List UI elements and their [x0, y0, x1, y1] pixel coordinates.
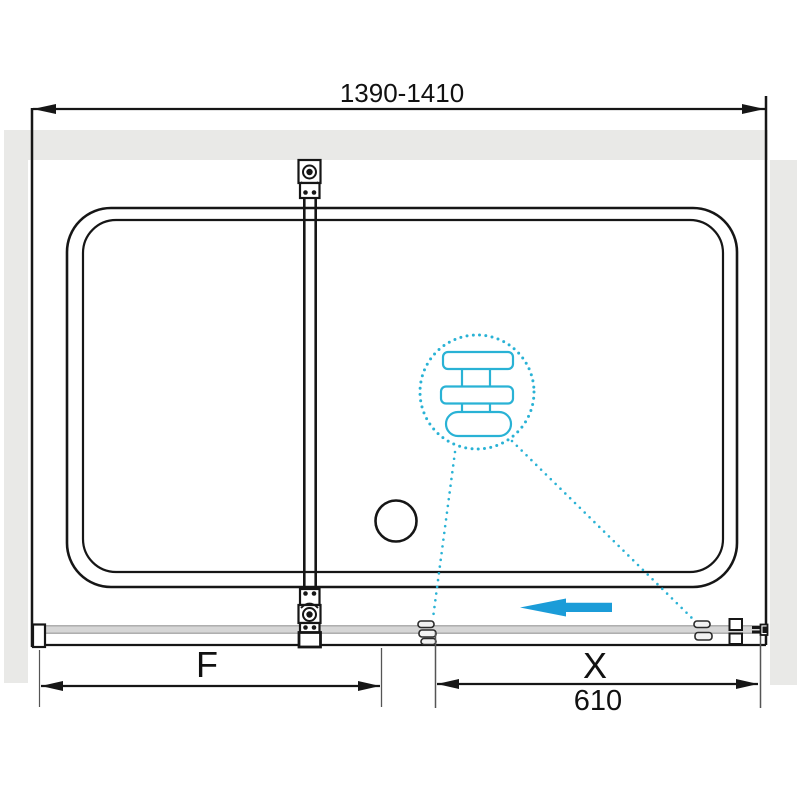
- slide-direction-arrow-icon: [520, 599, 612, 617]
- wall-top: [28, 130, 768, 160]
- drain-icon: [376, 501, 417, 542]
- dim-arrow-left-icon: [41, 681, 63, 691]
- towel-bar-top: [443, 352, 513, 369]
- door-roller-left-icon: [418, 621, 436, 645]
- fixed-panel-label: F: [196, 644, 218, 685]
- sliding-door-value: 610: [574, 685, 622, 717]
- overall-width-label: 1390-1410: [340, 78, 464, 108]
- bottom-rail: [32, 625, 766, 648]
- overall-width-dimension: 1390-1410: [33, 78, 765, 114]
- top-wall-bracket-icon: [299, 160, 321, 198]
- shower-door-technical-drawing: 1390-1410: [0, 0, 800, 800]
- sliding-door-label: X: [583, 645, 607, 686]
- dim-arrow-right-icon: [736, 679, 758, 689]
- dim-arrow-right-icon: [358, 681, 380, 691]
- wall-profile-left-icon: [33, 625, 45, 648]
- wall-right: [770, 160, 797, 685]
- wall-left: [4, 130, 28, 683]
- dim-arrow-right-icon: [742, 104, 765, 114]
- drawing-canvas: 1390-1410: [0, 0, 800, 800]
- towel-bar-bottom: [446, 412, 511, 436]
- dim-arrow-left-icon: [437, 679, 459, 689]
- bottom-wall-bracket-icon: [299, 589, 321, 647]
- rail-track: [44, 626, 766, 633]
- towel-bar-middle: [441, 387, 513, 404]
- fixed-panel-dimension: F: [40, 644, 382, 707]
- dim-arrow-left-icon: [33, 104, 56, 114]
